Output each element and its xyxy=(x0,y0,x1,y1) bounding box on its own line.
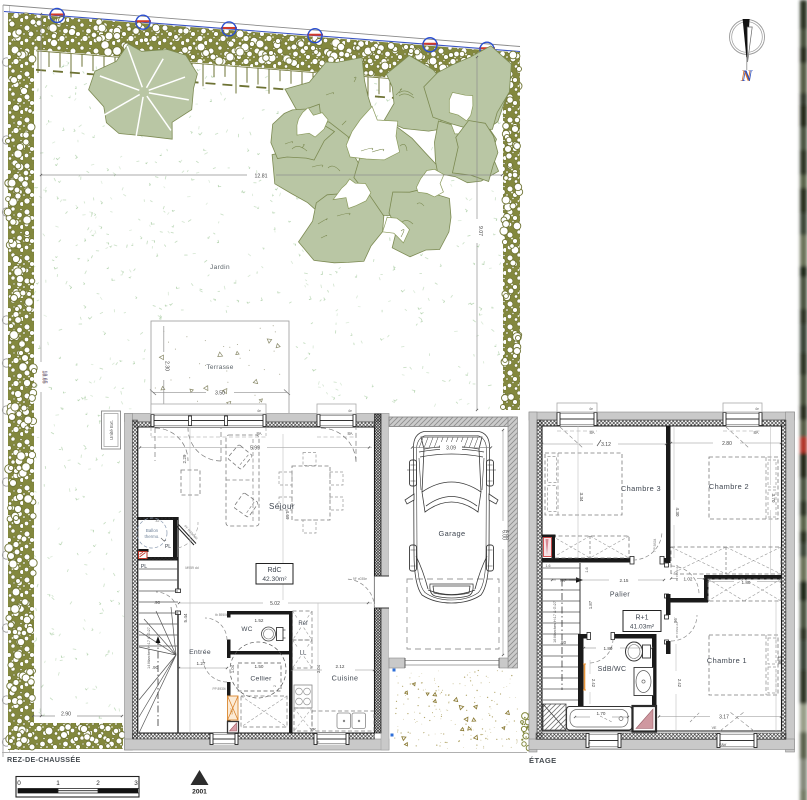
svg-text:.96: .96 xyxy=(673,617,678,623)
svg-text:Palier: Palier xyxy=(610,592,631,599)
svg-text:PP BS04 dd: PP BS04 dd xyxy=(675,622,679,639)
svg-text:Terrasse: Terrasse xyxy=(206,364,233,371)
svg-text:1.27: 1.27 xyxy=(197,661,206,666)
svg-text:1.87: 1.87 xyxy=(588,600,593,609)
svg-text:ÉTAGE: ÉTAGE xyxy=(529,756,557,765)
svg-text:2.29: 2.29 xyxy=(182,454,187,463)
svg-text:1.50: 1.50 xyxy=(255,664,264,669)
svg-text:2.12: 2.12 xyxy=(336,664,345,669)
svg-text:8A: 8A xyxy=(753,430,758,435)
svg-text:1.52: 1.52 xyxy=(255,618,264,623)
svg-text:4.30: 4.30 xyxy=(675,508,680,517)
svg-text:PL: PL xyxy=(165,544,171,550)
svg-text:.90: .90 xyxy=(152,665,159,670)
svg-text:2.90: 2.90 xyxy=(61,712,71,718)
svg-text:3.34: 3.34 xyxy=(579,493,584,502)
svg-text:5.99: 5.99 xyxy=(250,446,260,452)
svg-text:REZ-DE-CHAUSSÉE: REZ-DE-CHAUSSÉE xyxy=(7,755,81,764)
svg-text:M959 dd: M959 dd xyxy=(185,566,198,570)
svg-text:4e: 4e xyxy=(755,407,759,411)
svg-text:12.81: 12.81 xyxy=(255,174,268,180)
svg-text:PP 8930t: PP 8930t xyxy=(212,687,225,691)
svg-text:Ballon: Ballon xyxy=(146,528,159,533)
svg-text:Chambre 2: Chambre 2 xyxy=(709,482,749,491)
svg-text:2: 2 xyxy=(96,780,100,787)
svg-text:3.09: 3.09 xyxy=(446,446,456,452)
svg-text:18.65: 18.65 xyxy=(42,371,48,384)
svg-text:2.80: 2.80 xyxy=(722,441,732,447)
svg-text:Garage: Garage xyxy=(438,529,465,538)
svg-text:tb 8950t: tb 8950t xyxy=(215,613,227,617)
svg-text:4e: 4e xyxy=(348,409,352,413)
svg-text:LL: LL xyxy=(300,651,307,657)
svg-text:9F x035e: 9F x035e xyxy=(353,577,367,581)
svg-text:DEC: DEC xyxy=(230,707,234,714)
svg-text:FAV: FAV xyxy=(719,742,727,747)
svg-text:3.50: 3.50 xyxy=(215,391,225,397)
svg-text:Chambre 1: Chambre 1 xyxy=(707,656,747,665)
svg-text:WC: WC xyxy=(241,626,252,633)
svg-text:42.30m²: 42.30m² xyxy=(262,576,287,583)
svg-text:N: N xyxy=(741,68,754,85)
svg-text:41.03m²: 41.03m² xyxy=(630,624,655,631)
svg-text:3.12: 3.12 xyxy=(601,442,611,448)
svg-text:3.17: 3.17 xyxy=(719,715,729,721)
svg-text:Entrée: Entrée xyxy=(189,649,211,656)
svg-text:6.00: 6.00 xyxy=(501,530,507,540)
svg-text:2001: 2001 xyxy=(192,789,207,796)
svg-text:RdC: RdC xyxy=(267,567,281,574)
svg-text:2.42: 2.42 xyxy=(677,679,682,688)
svg-text:4.69: 4.69 xyxy=(285,511,290,520)
svg-text:Cellier: Cellier xyxy=(250,676,272,683)
svg-text:2.15: 2.15 xyxy=(620,578,629,583)
svg-text:8A: 8A xyxy=(589,430,594,435)
svg-text:Réf: Réf xyxy=(298,621,308,627)
svg-text:16 Marches H:17 & G:27: 16 Marches H:17 & G:27 xyxy=(553,601,557,643)
svg-text:1.80: 1.80 xyxy=(604,646,613,651)
svg-text:.80: .80 xyxy=(560,640,567,645)
svg-text:1.70: 1.70 xyxy=(597,711,606,716)
svg-text:Unité Ext.: Unité Ext. xyxy=(109,420,114,440)
svg-text:4e: 4e xyxy=(589,407,593,411)
svg-text:R+1: R+1 xyxy=(635,615,648,622)
svg-text:5.02: 5.02 xyxy=(270,601,280,607)
svg-text:Chambre 3: Chambre 3 xyxy=(621,484,661,493)
svg-text:3: 3 xyxy=(134,780,138,787)
svg-text:PP BS04 dd: PP BS04 dd xyxy=(675,565,679,582)
svg-text:.42: .42 xyxy=(155,519,160,523)
svg-text:3.98: 3.98 xyxy=(777,656,782,665)
svg-text:0: 0 xyxy=(17,780,21,787)
svg-text:.90: .90 xyxy=(154,600,161,605)
svg-text:2.42: 2.42 xyxy=(591,679,596,688)
svg-text:4e: 4e xyxy=(257,409,261,413)
svg-text:VE: VE xyxy=(712,726,717,730)
svg-text:Jardin: Jardin xyxy=(210,264,230,271)
svg-text:Cuisine: Cuisine xyxy=(332,674,359,683)
svg-text:2.30: 2.30 xyxy=(164,361,170,371)
svg-text:thermo.: thermo. xyxy=(145,534,160,539)
svg-text:3.70: 3.70 xyxy=(771,494,776,503)
svg-text:1.6: 1.6 xyxy=(546,564,551,568)
svg-text:PP BS04: PP BS04 xyxy=(653,538,657,551)
svg-text:14 Marches H:17 & G:27: 14 Marches H:17 & G:27 xyxy=(147,627,151,669)
svg-text:SdB/WC: SdB/WC xyxy=(598,666,627,673)
svg-text:9.07: 9.07 xyxy=(477,226,483,236)
svg-text:1.04: 1.04 xyxy=(230,664,235,673)
svg-text:1.02: 1.02 xyxy=(684,577,693,582)
svg-text:5.44: 5.44 xyxy=(183,613,188,622)
svg-text:1.6: 1.6 xyxy=(585,567,589,572)
svg-text:3.04: 3.04 xyxy=(316,664,321,673)
svg-text:2: 2 xyxy=(273,685,277,687)
svg-text:8A: 8A xyxy=(347,431,352,436)
svg-text:1: 1 xyxy=(56,780,60,787)
